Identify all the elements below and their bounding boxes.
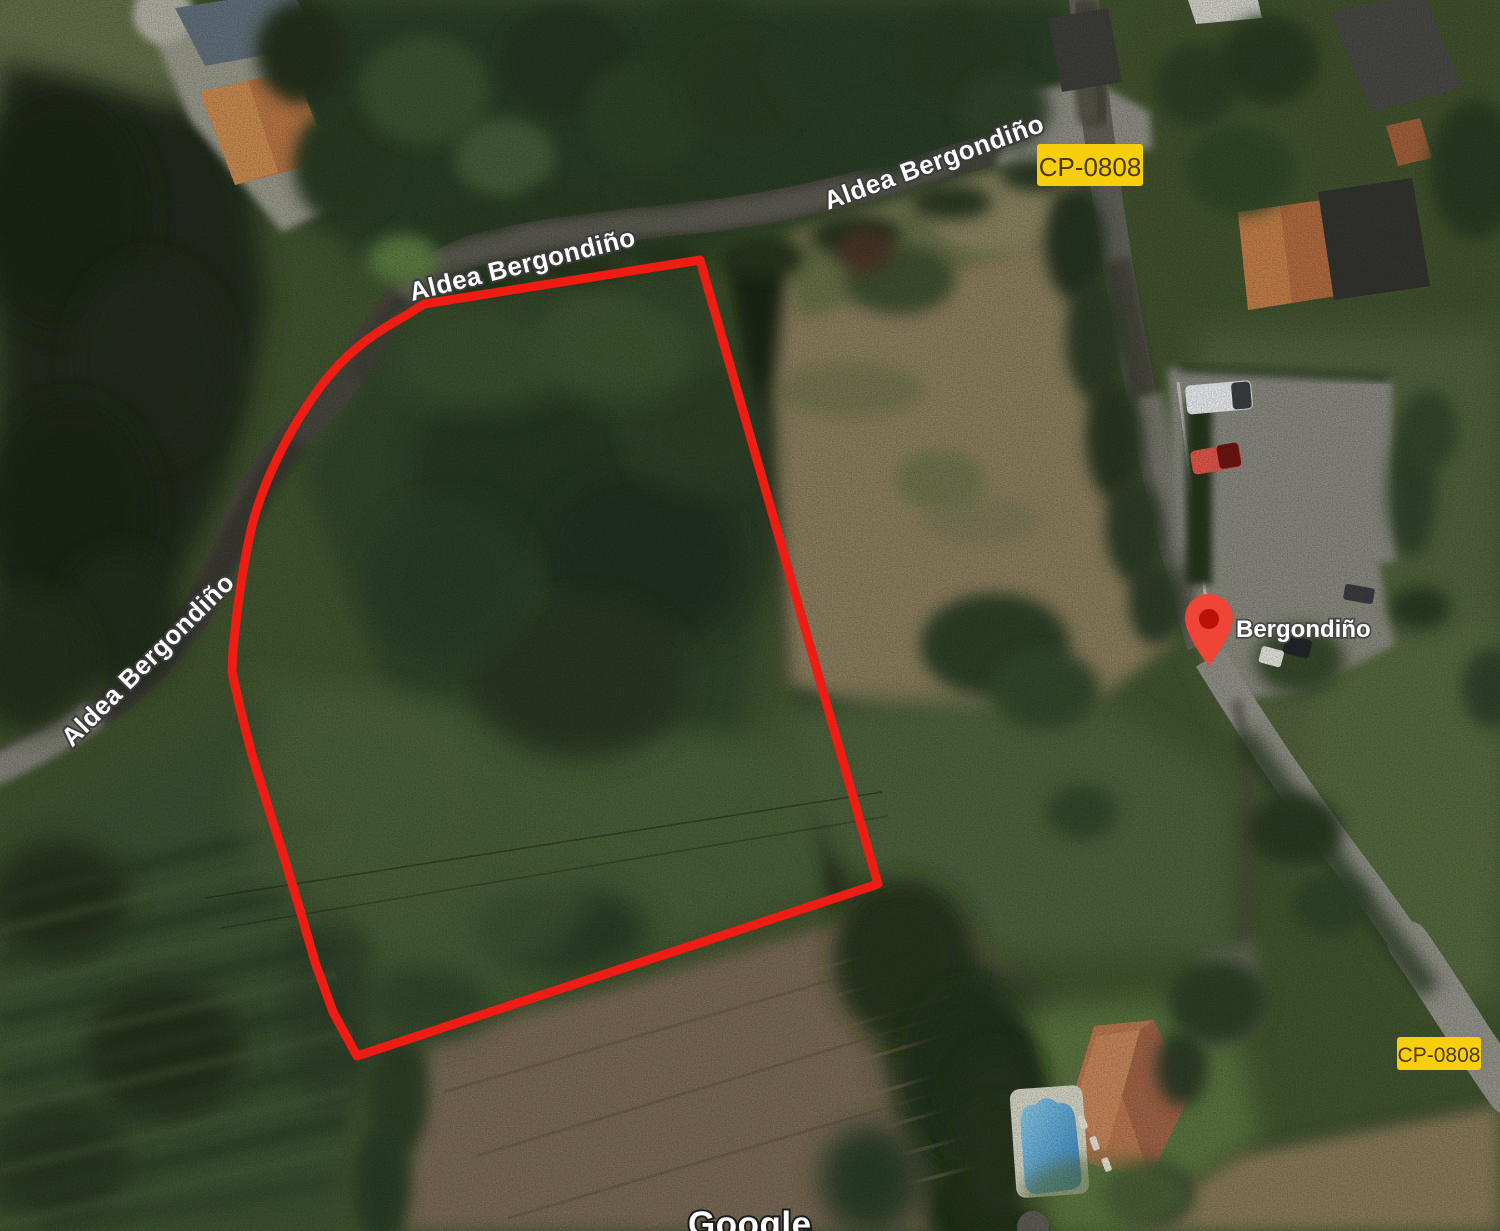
svg-text:Google: Google xyxy=(688,1205,812,1231)
svg-text:CP-0808: CP-0808 xyxy=(1039,152,1142,182)
svg-text:Bergondiño: Bergondiño xyxy=(1236,616,1371,643)
svg-text:CP-0808: CP-0808 xyxy=(1398,1044,1481,1067)
